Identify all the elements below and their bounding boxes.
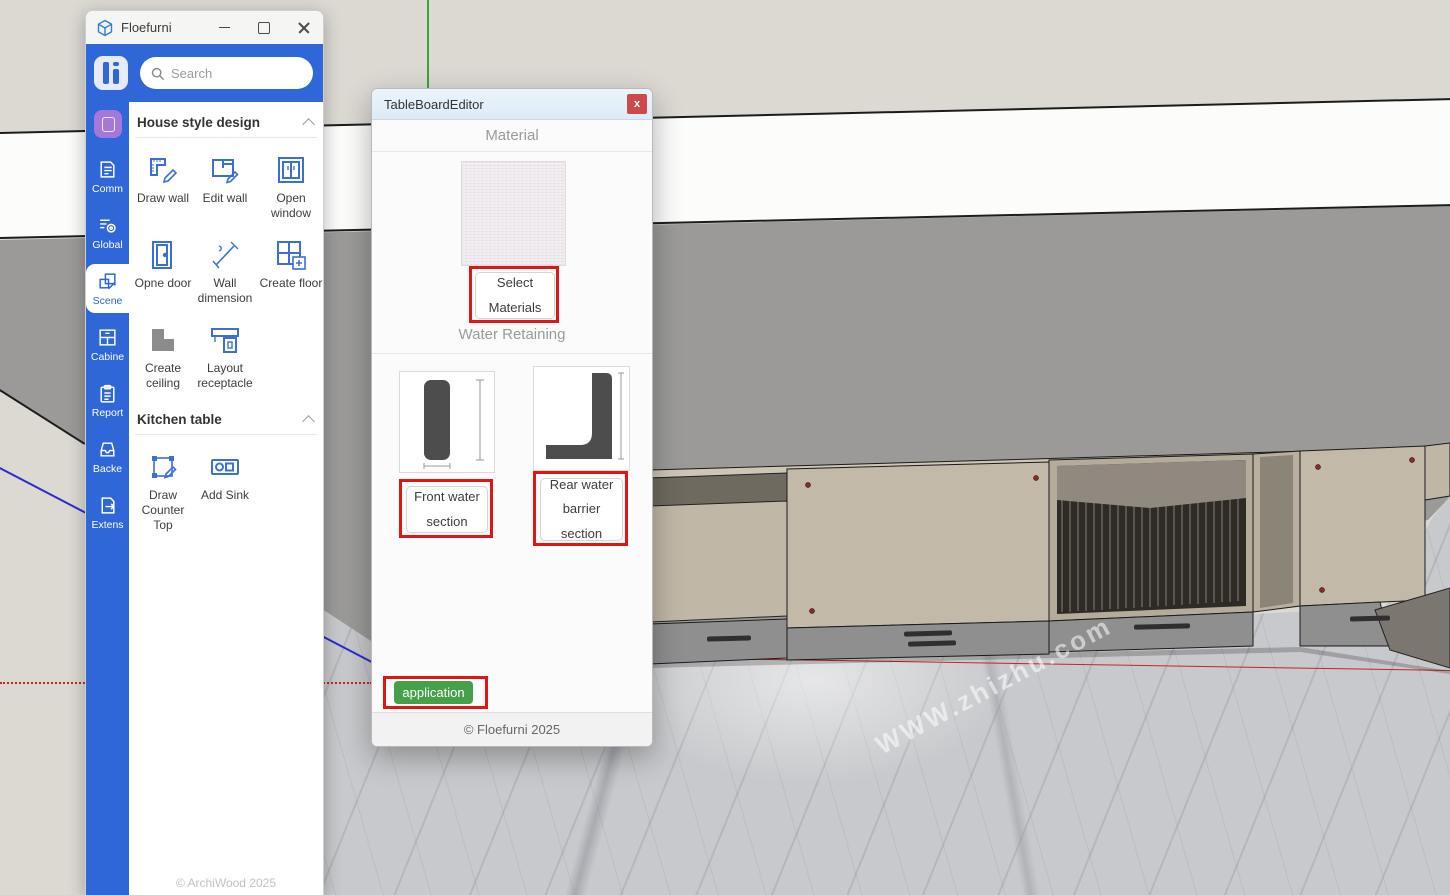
dialog-close-button[interactable]: x [627, 94, 647, 114]
rail-item-extens[interactable]: Extens [86, 488, 129, 537]
front-water-section-button[interactable]: Front water section [406, 486, 488, 533]
maximize-button[interactable] [257, 21, 271, 35]
maximize-icon [258, 22, 270, 34]
section-kitchen-table[interactable]: Kitchen table [129, 399, 323, 434]
tool-open-window[interactable]: Open window [258, 152, 323, 221]
app-tile-icon[interactable] [94, 110, 122, 138]
export-doc-icon [97, 495, 118, 516]
water-retaining-heading: Water Retaining [372, 326, 652, 343]
rear-water-profile-image [533, 366, 630, 471]
create-floor-icon [273, 237, 309, 273]
nav-rail: Comm Global Scene Cabine Report [86, 102, 129, 895]
search-icon [150, 66, 165, 81]
rail-item-cabine[interactable]: Cabine [86, 320, 129, 369]
tools-panel: House style design Draw wall Edit wall [129, 102, 323, 895]
annotation-box-front-water: Front water section [399, 479, 493, 538]
app-logo-icon [94, 56, 128, 90]
axis-green-line [427, 0, 429, 88]
rear-profile-icon [534, 367, 629, 470]
dialog-titlebar[interactable]: TableBoardEditor x [372, 89, 652, 120]
annotation-box-application: application [383, 676, 488, 709]
tool-edit-wall[interactable]: Edit wall [192, 152, 258, 206]
add-sink-icon [207, 449, 243, 485]
open-window-icon [273, 152, 309, 188]
scene-icon [97, 271, 118, 292]
section-house-style[interactable]: House style design [129, 102, 323, 137]
floefurni-window: Floefurni Search Comm [85, 10, 324, 895]
tool-create-ceiling[interactable]: Draw Counter Top Create ceiling [134, 322, 192, 391]
tool-opne-door[interactable]: Opne door [134, 237, 192, 291]
annotation-box-select-materials: Select Materials [469, 266, 559, 323]
rail-item-global[interactable]: Global [86, 208, 129, 257]
dialog-footer: © Floefurni 2025 [372, 712, 652, 746]
floefurni-logo-icon [96, 19, 114, 37]
front-profile-icon [400, 372, 494, 472]
tool-add-sink[interactable]: Add Sink [192, 449, 258, 503]
chevron-up-icon [302, 118, 315, 131]
inbox-icon [97, 439, 118, 460]
kitchen-cabinet-row [650, 440, 1450, 675]
report-clipboard-icon [97, 383, 118, 404]
application-button[interactable]: application [394, 681, 473, 704]
material-swatch[interactable] [461, 161, 566, 266]
select-materials-button[interactable]: Select Materials [475, 272, 555, 319]
rail-item-report[interactable]: Report [86, 376, 129, 425]
edit-wall-icon [207, 152, 243, 188]
annotation-box-rear-water: Rear water barrier section [533, 471, 628, 546]
draw-wall-icon [145, 152, 181, 188]
material-heading: Material [372, 127, 652, 144]
rail-item-comm[interactable]: Comm [86, 152, 129, 201]
wall-dimension-icon [207, 237, 243, 273]
rail-item-backe[interactable]: Backe [86, 432, 129, 481]
minimize-button[interactable] [217, 21, 231, 35]
close-icon [298, 22, 310, 34]
minimize-icon [219, 27, 230, 28]
close-button[interactable] [297, 21, 311, 35]
window-title: Floefurni [121, 20, 172, 35]
global-settings-icon [97, 215, 118, 236]
tool-wall-dimension[interactable]: Wall dimension [192, 237, 258, 306]
rear-water-barrier-button[interactable]: Rear water barrier section [540, 478, 623, 541]
app-header: Search [86, 44, 323, 102]
tool-draw-counter-top[interactable]: Draw Counter Top [134, 449, 192, 533]
chevron-up-icon [302, 415, 315, 428]
tableboard-editor-dialog: TableBoardEditor x Material Select Mater… [371, 88, 653, 747]
dialog-title: TableBoardEditor [384, 97, 627, 112]
panel-footer: © ArchiWood 2025 [129, 876, 323, 890]
search-input[interactable]: Search [140, 57, 313, 89]
create-ceiling-icon [145, 322, 181, 358]
tool-create-floor[interactable]: Create floor [258, 237, 323, 291]
cabinet-icon [97, 327, 118, 348]
draw-counter-top-icon [145, 449, 181, 485]
tool-draw-wall[interactable]: Draw wall [134, 152, 192, 206]
window-titlebar: Floefurni [86, 11, 323, 44]
tool-layout-receptacle[interactable]: Layout receptacle [192, 322, 258, 391]
front-water-profile-image [399, 371, 495, 473]
open-door-icon [145, 237, 181, 273]
layout-receptacle-icon [207, 322, 243, 358]
command-doc-icon [97, 159, 118, 180]
rail-item-scene[interactable]: Scene [86, 264, 129, 313]
search-placeholder: Search [171, 66, 212, 81]
viewport: WWW.zhizhu.com Floefurni Search [0, 0, 1450, 895]
